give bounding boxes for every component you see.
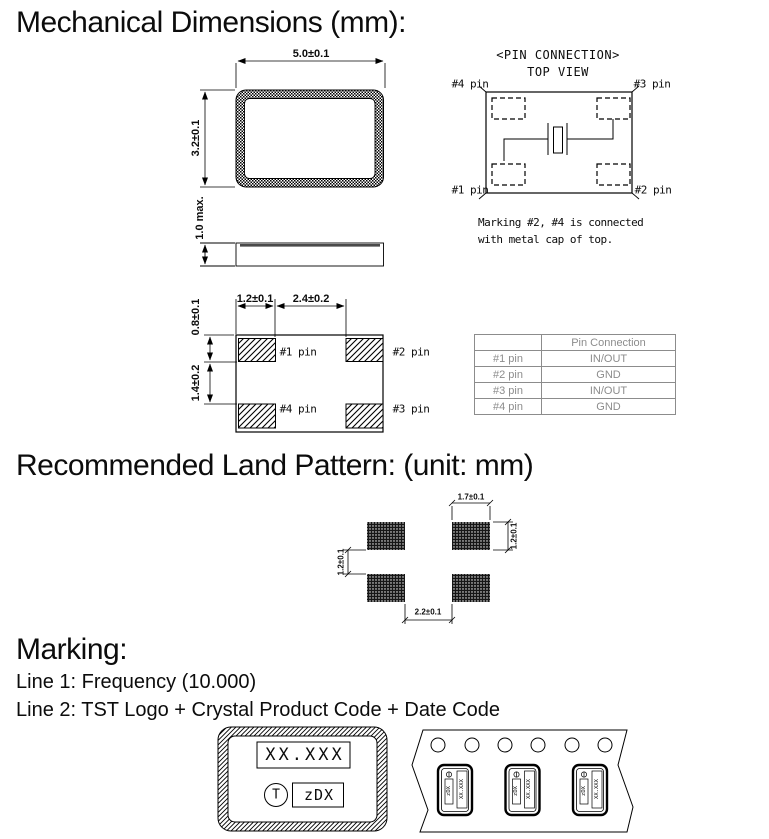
tape1-frequency-text: XX.XXX — [459, 779, 465, 799]
tape2-code-text: zDX — [513, 786, 519, 796]
heading-mechanical-dimensions: Mechanical Dimensions (mm): — [16, 6, 406, 40]
pin-connection-title: <PIN CONNECTION> — [496, 48, 620, 62]
marking-product-code-text: zDX — [304, 786, 334, 804]
tape3-code-text: zDX — [581, 786, 587, 796]
table-cell-pin2: #2 pin — [475, 367, 542, 383]
table-cell-pin1: #1 pin — [475, 351, 542, 367]
table-cell-pin1-func: IN/OUT — [542, 351, 676, 367]
lp-dim-pad-width: 1.7±0.1 — [458, 493, 485, 502]
dim-pad-vgap: 1.4±0.2 — [190, 365, 202, 402]
dim-pad-width: 1.2±0.1 — [237, 293, 274, 305]
datasheet-page: Mechanical Dimensions (mm): Recommended … — [0, 0, 769, 839]
table-cell-pin3-func: IN/OUT — [542, 383, 676, 399]
marking-frequency-text: XX.XXX — [265, 745, 344, 765]
table-header-empty — [475, 335, 542, 351]
table-row: #3 pin IN/OUT — [475, 383, 676, 399]
dim-body-width: 5.0±0.1 — [293, 48, 330, 60]
heading-marking: Marking: — [16, 633, 127, 667]
pin-connection-drawing — [479, 86, 639, 199]
pin-1-label: #1 pin — [452, 184, 489, 197]
dim-body-height: 3.2±0.1 — [190, 120, 202, 157]
table-row: #4 pin GND — [475, 399, 676, 415]
lp-dim-col-gap: 2.2±0.1 — [415, 608, 442, 617]
table-header-pin-connection: Pin Connection — [542, 335, 676, 351]
pin-2-label: #2 pin — [635, 184, 672, 197]
pin-connection-subtitle: TOP VIEW — [527, 65, 589, 79]
lp-dim-pad-height: 1.2±0.1 — [510, 523, 519, 550]
lp-dim-row-gap: 1.2±0.1 — [337, 549, 346, 576]
table-row: #1 pin IN/OUT — [475, 351, 676, 367]
marking-note-line-1: Marking #2, #4 is connected — [478, 216, 643, 229]
dim-pad-height: 0.8±0.1 — [190, 299, 202, 336]
pin-connection-table: Pin Connection #1 pin IN/OUT #2 pin GND … — [474, 334, 676, 415]
marking-example-drawing — [218, 727, 387, 831]
dim-pad-gap: 2.4±0.2 — [293, 293, 330, 305]
marking-line-1: Line 1: Frequency (10.000) — [16, 671, 256, 694]
tst-logo-letter: T — [272, 788, 280, 803]
pin-3-label: #3 pin — [634, 78, 671, 91]
table-row: #2 pin GND — [475, 367, 676, 383]
pin-4-label: #4 pin — [452, 78, 489, 91]
table-cell-pin2-func: GND — [542, 367, 676, 383]
tape3-frequency-text: XX.XXX — [594, 779, 600, 799]
top-view-drawing — [200, 61, 385, 187]
land-pattern-drawing — [343, 500, 513, 624]
bottom-pin-1-label: #1 pin — [280, 346, 317, 359]
heading-land-pattern: Recommended Land Pattern: (unit: mm) — [16, 449, 533, 483]
tape1-code-text: zDX — [446, 786, 452, 796]
marking-note-line-2: with metal cap of top. — [478, 233, 613, 246]
bottom-pin-3-label: #3 pin — [393, 403, 430, 416]
dim-body-thickness: 1.0 max. — [194, 196, 206, 239]
side-view-drawing — [200, 243, 384, 266]
bottom-pin-4-label: #4 pin — [280, 403, 317, 416]
table-cell-pin3: #3 pin — [475, 383, 542, 399]
table-cell-pin4-func: GND — [542, 399, 676, 415]
table-header-row: Pin Connection — [475, 335, 676, 351]
marking-line-2: Line 2: TST Logo + Crystal Product Code … — [16, 699, 500, 722]
bottom-pin-2-label: #2 pin — [393, 346, 430, 359]
tape2-frequency-text: XX.XXX — [526, 779, 532, 799]
table-cell-pin4: #4 pin — [475, 399, 542, 415]
